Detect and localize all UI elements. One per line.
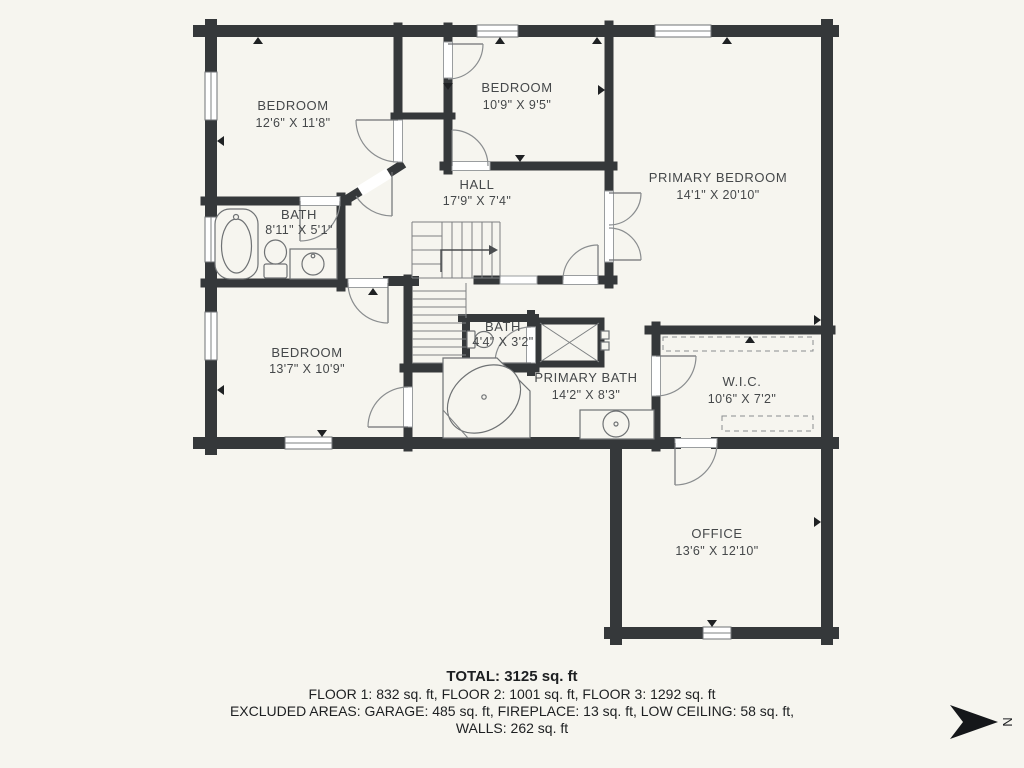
window [703, 627, 731, 639]
door [368, 387, 413, 427]
north-arrow-icon [950, 705, 998, 739]
room-dims: 12'6" X 11'8" [256, 116, 331, 130]
room-label: BATH [485, 319, 521, 334]
room-label: HALL [460, 177, 495, 192]
room-bedroom-1: BEDROOM12'6" X 11'8" [256, 98, 331, 130]
door [452, 130, 490, 171]
room-dims: 8'11" X 5'1" [265, 223, 333, 237]
room-office: OFFICE13'6" X 12'10" [675, 526, 758, 558]
room-dims: 10'6" X 7'2" [708, 392, 777, 406]
window [477, 25, 518, 37]
bathtub [215, 209, 258, 279]
cased-opening [500, 276, 537, 284]
room-primary-bedroom: PRIMARY BEDROOM14'1" X 20'10" [649, 170, 788, 202]
sink-vanity-primary [580, 410, 654, 439]
fireplace-chase [538, 321, 609, 364]
summary-floors: FLOOR 1: 832 sq. ft, FLOOR 2: 1001 sq. f… [309, 686, 716, 702]
toilet [264, 240, 287, 278]
room-primary-bath: PRIMARY BATH14'2" X 8'3" [534, 370, 637, 402]
sink-vanity [290, 249, 337, 279]
area-summary: TOTAL: 3125 sq. ft FLOOR 1: 832 sq. ft, … [230, 668, 794, 736]
floor-plan-page: BEDROOM12'6" X 11'8" BEDROOM10'9" X 9'5"… [0, 0, 1024, 768]
compass: N [950, 705, 1015, 739]
room-bedroom-2: BEDROOM10'9" X 9'5" [481, 80, 552, 112]
room-dims: 13'7" X 10'9" [269, 362, 345, 376]
room-dims: 14'1" X 20'10" [676, 188, 759, 202]
double-door [605, 191, 642, 262]
door [563, 245, 598, 285]
room-bath-1: BATH8'11" X 5'1" [265, 207, 333, 237]
room-label: W.I.C. [723, 374, 762, 389]
room-label: BEDROOM [481, 80, 552, 95]
room-label: BATH [281, 207, 317, 222]
door [356, 120, 403, 162]
window [205, 72, 217, 120]
room-label: PRIMARY BEDROOM [649, 170, 788, 185]
room-label: BEDROOM [271, 345, 342, 360]
door [444, 42, 484, 79]
room-dims: 10'9" X 9'5" [483, 98, 552, 112]
floor-plan-drawing: BEDROOM12'6" X 11'8" BEDROOM10'9" X 9'5"… [0, 0, 1024, 768]
window [655, 25, 711, 37]
summary-walls: WALLS: 262 sq. ft [456, 720, 568, 736]
room-dims: 17'9" X 7'4" [443, 194, 512, 208]
window [285, 437, 332, 449]
stair-direction-arrow [441, 245, 498, 272]
room-dims: 14'2" X 8'3" [552, 388, 621, 402]
room-bedroom-3: BEDROOM13'7" X 10'9" [269, 345, 345, 376]
room-label: OFFICE [691, 526, 742, 541]
room-label: BEDROOM [257, 98, 328, 113]
summary-total: TOTAL: 3125 sq. ft [446, 668, 577, 685]
bath-fixtures [215, 209, 654, 447]
room-hall: HALL17'9" X 7'4" [443, 177, 512, 208]
room-label: PRIMARY BATH [534, 370, 637, 385]
door [675, 439, 717, 486]
window [205, 312, 217, 360]
north-letter: N [1000, 717, 1015, 726]
door [652, 356, 697, 396]
summary-excluded: EXCLUDED AREAS: GARAGE: 485 sq. ft, FIRE… [230, 703, 794, 719]
room-wic: W.I.C.10'6" X 7'2" [708, 374, 777, 406]
door [348, 279, 388, 324]
room-dims: 4'4" X 3'2" [472, 335, 533, 349]
room-dims: 13'6" X 12'10" [675, 544, 758, 558]
